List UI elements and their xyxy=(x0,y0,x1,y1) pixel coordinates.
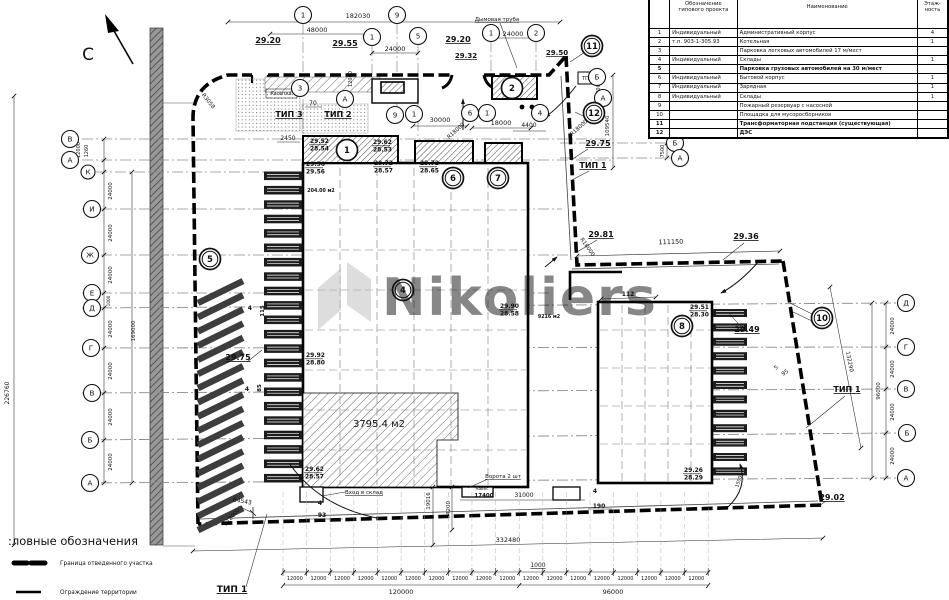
chain-segment-label: 12000 xyxy=(499,576,515,582)
annotation-text: 1260 xyxy=(84,145,90,158)
axis-circle-Г: Г xyxy=(898,339,915,356)
elevation-top: 29.26 xyxy=(684,467,703,474)
axis-circle-label: Б xyxy=(88,436,93,445)
chain-segment-label: 12000 xyxy=(287,576,303,582)
table-cell: 11 xyxy=(650,119,670,128)
annotation-text: 204.00 м2 xyxy=(307,188,334,194)
building-circle-label: 10 xyxy=(816,314,828,324)
annotation-text: 29.50 xyxy=(546,49,568,57)
elevation-top: 29.51 xyxy=(690,304,709,311)
table-cell: 1 xyxy=(917,92,947,101)
chain-segment-label: 12000 xyxy=(618,576,634,582)
legend-item-boundary: Граница отведенного участка xyxy=(60,561,153,567)
elevation-mark: 29.6228.57 xyxy=(304,466,324,481)
table-cell xyxy=(670,129,737,138)
building-circle-label: 12 xyxy=(588,109,600,119)
axis-circle-label: 6 xyxy=(468,109,473,118)
annotation-text: 226760 xyxy=(4,381,11,404)
parking-stripe xyxy=(264,402,302,411)
stripe-body xyxy=(264,330,302,339)
table-cell: Индивидуальный xyxy=(670,92,737,101)
table-cell: Склады xyxy=(737,92,917,101)
stripe-body xyxy=(264,186,302,195)
axis-circle-А: А xyxy=(337,91,354,108)
elevation-bottom: 28.29 xyxy=(684,475,703,482)
table-cell: Парковка легковых автомобилей 17 м/мест xyxy=(737,47,917,56)
table-header-name: Наименование xyxy=(737,0,917,29)
table-header-designation: Обозначение типового проекта xyxy=(670,0,737,29)
parking-stripe xyxy=(264,460,302,469)
table-row: 11Трансформаторная подстанция (существую… xyxy=(650,119,948,128)
annotation-text: 29.55 xyxy=(332,39,358,48)
table-cell xyxy=(670,110,737,119)
annotation-text: ТИП 1 xyxy=(217,585,248,595)
stripe-body xyxy=(264,172,302,181)
axis-circle-label: А xyxy=(88,479,93,488)
axis-circle-label: В xyxy=(904,385,909,394)
annotation-text: 24000 xyxy=(108,362,114,380)
chain-segment-label: 12000 xyxy=(665,576,681,582)
annotation-text: ТИП 3 xyxy=(275,110,302,119)
annotation-text: 29.36 xyxy=(733,232,759,241)
chain-segment-label: 12000 xyxy=(429,576,445,582)
stripe-body xyxy=(713,381,747,389)
table-cell: 7 xyxy=(650,83,670,92)
annotation-text: 24000 xyxy=(890,403,896,421)
elevation-bottom: 28.57 xyxy=(374,168,393,175)
table-cell: Парковка грузовых автомобилей на 30 м/ме… xyxy=(737,65,917,74)
table-cell: 8 xyxy=(650,92,670,101)
axis-circle-А: А xyxy=(62,152,79,169)
table-cell xyxy=(917,110,947,119)
axis-circle-label: 9 xyxy=(395,11,400,20)
axis-circle-1: 1 xyxy=(479,105,496,122)
elevation-top: 29.52 xyxy=(310,138,329,145)
elevation-mark: 29.5228.54 xyxy=(309,138,329,153)
annotation-text: 19016 xyxy=(426,492,432,510)
annotation-text: 96000 xyxy=(603,588,624,596)
table-cell: Индивидуальный xyxy=(670,83,737,92)
annotation-text: 29.20 xyxy=(445,35,471,44)
annotation-text: 115 xyxy=(260,305,266,317)
axis-circle-5: 5 xyxy=(410,28,427,45)
legend-item-fence: Ограждение территории xyxy=(60,590,137,596)
parking-stripe xyxy=(264,229,302,238)
axis-circle-label: 9 xyxy=(393,111,398,120)
annotation-text: 24000 xyxy=(108,266,114,284)
elevation-top: 29.92 xyxy=(306,352,325,359)
table-cell: Индивидуальный xyxy=(670,29,737,38)
annotation-text: 3795.4 м2 xyxy=(353,419,405,430)
annotation-text: Калитка xyxy=(270,91,291,97)
chain-segment-label: 12000 xyxy=(594,576,610,582)
legend-title: :ловные обозначения xyxy=(8,534,138,548)
axis-circle-label: 2 xyxy=(534,29,539,38)
stripe-body xyxy=(264,359,302,368)
annotation-text: 1000 xyxy=(106,295,111,306)
chain-segment-label: 12000 xyxy=(476,576,492,582)
annotation-text: 1000 xyxy=(530,562,545,569)
annotation-text: 4 xyxy=(318,500,322,507)
annotation-text: 24000 xyxy=(385,45,406,53)
axis-circle-Б: Б xyxy=(589,69,606,86)
table-cell: Административный корпус xyxy=(737,29,917,38)
axis-circle-3: 3 xyxy=(292,80,309,97)
table-cell: Котельная xyxy=(737,38,917,47)
stripe-body xyxy=(264,200,302,209)
table-row: 9Пожарный резервуар с насосной xyxy=(650,101,948,110)
table-cell xyxy=(670,47,737,56)
stripe-body xyxy=(713,352,747,360)
annotation-text: 18000 xyxy=(491,119,512,127)
table-cell: 1 xyxy=(917,56,947,65)
building-label-1: 1 xyxy=(337,140,358,161)
annotation-text: 182030 xyxy=(346,12,371,20)
axis-circle-1: 1 xyxy=(295,7,312,24)
stripe-body xyxy=(713,410,747,418)
chain-segment-label: 12000 xyxy=(688,576,704,582)
axis-circle-label: Г xyxy=(89,344,93,353)
axis-circle-1: 1 xyxy=(483,25,500,42)
axis-circle-label: 3 xyxy=(298,84,303,93)
table-cell: 3 xyxy=(650,47,670,56)
annotation-text: 4400 xyxy=(521,122,536,129)
axis-circle-label: Б xyxy=(595,73,600,82)
axis-circle-label: 1 xyxy=(301,11,306,20)
annotation-text: 24000 xyxy=(890,360,896,378)
axis-circle-label: 5 xyxy=(416,32,421,41)
axis-circle-label: В xyxy=(68,135,73,144)
table-row: 4ИндивидуальныйСклады1 xyxy=(650,56,948,65)
stripe-body xyxy=(264,373,302,382)
annotation-text: ТП xyxy=(581,76,589,82)
table-cell xyxy=(917,65,947,74)
parking-stripe xyxy=(264,316,302,325)
parking-stripe xyxy=(264,445,302,454)
elevation-mark: 29.7228.57 xyxy=(373,160,393,175)
table-cell xyxy=(917,119,947,128)
stripe-body xyxy=(264,388,302,397)
elevation-top: 29.72 xyxy=(374,160,393,167)
building-7-charging xyxy=(485,143,522,163)
table-cell: Пожарный резервуар с насосной xyxy=(737,101,917,110)
parking-stripe xyxy=(713,424,747,432)
stripe-body xyxy=(713,338,747,346)
elevation-top: 29.62 xyxy=(373,139,392,146)
table-cell xyxy=(670,101,737,110)
chain-segment-label: 12000 xyxy=(310,576,326,582)
axis-circle-А: А xyxy=(672,150,689,167)
annotation-text: 30000 xyxy=(430,116,451,124)
axis-circle-Д: Д xyxy=(84,300,101,317)
annotation-text: 4 xyxy=(245,386,249,393)
stripe-body xyxy=(264,460,302,469)
parking-stripe xyxy=(264,215,302,224)
boiler-tank xyxy=(520,105,525,110)
parking-stripe xyxy=(264,258,302,267)
table-header-floors: Этаж- ность xyxy=(917,0,947,29)
stripe-body xyxy=(713,439,747,447)
stripe-body xyxy=(264,445,302,454)
table-row: 1ИндивидуальныйАдминистративный корпус4 xyxy=(650,29,948,38)
table-cell xyxy=(917,129,947,138)
table-cell: 4 xyxy=(917,29,947,38)
parking-stripe xyxy=(713,338,747,346)
elevation-mark: 29.9228.80 xyxy=(305,352,325,367)
north-label: С xyxy=(82,45,94,65)
parking-stripe xyxy=(713,367,747,375)
axis-circle-label: 1 xyxy=(370,33,375,42)
chain-segment-label: 12000 xyxy=(381,576,397,582)
elevation-bottom: 28.65 xyxy=(420,168,439,175)
annotation-text: 24000 xyxy=(890,317,896,335)
parking-stripe xyxy=(264,373,302,382)
axis-circle-Д: Д xyxy=(898,295,915,312)
building-circle-label: 1 xyxy=(344,146,350,156)
stripe-body xyxy=(264,431,302,440)
axis-circle-Ж: Ж xyxy=(82,247,99,264)
axis-circle-label: Д xyxy=(89,304,95,313)
axis-circle-6: 6 xyxy=(462,105,479,122)
stripe-body xyxy=(264,402,302,411)
chain-segment-label: 12000 xyxy=(547,576,563,582)
parking-stripe xyxy=(264,244,302,253)
annotation-text: 4200 xyxy=(446,501,452,515)
annotation-text: Ворота 2 шт xyxy=(485,474,522,480)
axis-circle-label: 4 xyxy=(538,109,543,118)
parking-stripe xyxy=(264,186,302,195)
annotation-text: 29.75 xyxy=(585,139,611,148)
site-plan-page: С :ловные обозначения Граница отведенног… xyxy=(0,0,949,600)
parking-stripe xyxy=(713,309,747,317)
table-cell: 2 xyxy=(650,38,670,47)
elevation-mark: 29.6228.53 xyxy=(372,139,392,154)
table-cell: Площадка для мусоросборников xyxy=(737,110,917,119)
annotation-text: 29.81 xyxy=(588,230,614,239)
watermark-text: Nikoliers xyxy=(382,268,658,328)
axis-circle-И: И xyxy=(84,201,101,218)
axis-circle-В: В xyxy=(898,381,915,398)
axis-circle-label: И xyxy=(89,205,94,214)
annotation-text: 29.75 xyxy=(225,353,251,362)
table-row: 12ДЭС xyxy=(650,129,948,138)
axis-circle-label: А xyxy=(904,474,909,483)
chain-segment-label: 12000 xyxy=(334,576,350,582)
table-cell xyxy=(670,119,737,128)
axis-circle-label: А xyxy=(678,154,683,163)
elevation-top: 29.56 xyxy=(306,161,325,168)
annotation-text: 17400 xyxy=(474,493,493,499)
axis-circle-2: 2 xyxy=(528,25,545,42)
parking-stripe xyxy=(713,410,747,418)
axis-circle-label: 1 xyxy=(489,29,494,38)
stripe-body xyxy=(264,474,302,483)
annotation-text: 24000 xyxy=(108,224,114,242)
stripe-body xyxy=(264,416,302,425)
axis-circle-label: Е xyxy=(90,289,95,298)
axis-circle-К: К xyxy=(81,165,95,179)
annotation-text: 29.20 xyxy=(255,36,281,45)
elevation-bottom: 28.53 xyxy=(373,147,392,154)
table-cell: 12 xyxy=(650,129,670,138)
annotation-text: 96000 xyxy=(876,382,882,400)
table-row: 8ИндивидуальныйСклады1 xyxy=(650,92,948,101)
annotation-text: ТИП 1 xyxy=(833,385,861,394)
axis-circle-label: Б xyxy=(905,429,910,438)
stripe-body xyxy=(713,424,747,432)
elevation-mark: 29.5128.30 xyxy=(689,304,709,319)
annotation-text: 24000 xyxy=(503,30,524,38)
building-label-2: 2 xyxy=(502,78,523,99)
annotation-text: 24000 xyxy=(108,320,114,338)
building-label-11: 11 xyxy=(582,36,603,57)
stripe-body xyxy=(264,287,302,296)
table-cell: 10 xyxy=(650,110,670,119)
annotation-text: ТИП 1 xyxy=(579,161,607,170)
axis-circle-label: А xyxy=(68,156,73,165)
elevation-bottom: 29.56 xyxy=(306,169,325,176)
table-cell: Трансформаторная подстанция (существующа… xyxy=(737,119,917,128)
table-cell: 1 xyxy=(917,74,947,83)
table-cell: Бытовой корпус xyxy=(737,74,917,83)
chain-segment-label: 12000 xyxy=(358,576,374,582)
building-circle-label: 11 xyxy=(586,42,598,52)
annotation-text: 4 xyxy=(248,305,252,312)
annotation-text: 111150 xyxy=(658,238,683,247)
elevation-mark: 29.2628.29 xyxy=(683,467,703,482)
parking-stripe xyxy=(264,200,302,209)
parking-stripe xyxy=(264,172,302,181)
table-cell: 1 xyxy=(917,83,947,92)
axis-circle-label: Б xyxy=(673,139,678,148)
axis-circle-1: 1 xyxy=(364,29,381,46)
table-cell: 5 xyxy=(650,65,670,74)
parking-stripe xyxy=(713,381,747,389)
table-header-num xyxy=(650,0,670,29)
annotation-text: 24000 xyxy=(108,408,114,426)
axis-circle-4: 4 xyxy=(532,105,549,122)
annotation-text: 2450 xyxy=(280,135,295,142)
axis-circle-label: 1 xyxy=(412,110,417,119)
table-cell: Склады xyxy=(737,56,917,65)
table-row: 2т.п. 903-1-305.93Котельная1 xyxy=(650,38,948,47)
elevation-top: 29.62 xyxy=(305,466,324,473)
parking-stripe xyxy=(264,359,302,368)
annotation-text: 7500 xyxy=(660,145,666,158)
annotation-text: 29.02 xyxy=(819,493,844,502)
stripe-body xyxy=(264,244,302,253)
elevation-mark: 29.7228.65 xyxy=(419,160,439,175)
table-row: 10Площадка для мусоросборников xyxy=(650,110,948,119)
annotation-text: 24000 xyxy=(108,453,114,471)
parking-stripe xyxy=(713,395,747,403)
table-row: 7ИндивидуальныйЗарядная1 xyxy=(650,83,948,92)
table-cell: т.п. 903-1-305.93 xyxy=(670,38,737,47)
axis-circle-Г: Г xyxy=(83,340,100,357)
axis-circle-Б: Б xyxy=(899,425,916,442)
parking-stripe xyxy=(264,287,302,296)
axis-circle-В: В xyxy=(84,385,101,402)
building-circle-label: 7 xyxy=(495,174,501,184)
chain-segment-label: 12000 xyxy=(523,576,539,582)
annotation-text: 4 xyxy=(593,488,597,495)
stripe-body xyxy=(264,301,302,310)
table-row: 5Парковка грузовых автомобилей на 30 м/м… xyxy=(650,65,948,74)
table-cell: 1 xyxy=(650,29,670,38)
stripe-body xyxy=(264,258,302,267)
parking-stripe xyxy=(264,301,302,310)
stripe-body xyxy=(264,344,302,353)
building-label-12: 12 xyxy=(584,103,605,124)
elevation-bottom: 28.54 xyxy=(310,146,329,153)
parking-stripe xyxy=(264,344,302,353)
stripe-body xyxy=(713,395,747,403)
chain-segment-label: 12000 xyxy=(452,576,468,582)
annotation-text: 31000 xyxy=(514,492,533,499)
stripe-body xyxy=(264,316,302,325)
annotation-text: Дымовая труба xyxy=(475,17,520,23)
axis-circle-label: Г xyxy=(904,343,908,352)
annotation-text: 332480 xyxy=(496,536,521,544)
parking-stripe xyxy=(264,388,302,397)
annotation-text: 12000 xyxy=(348,71,354,87)
axis-circle-9: 9 xyxy=(387,107,404,124)
stripe-body xyxy=(264,272,302,281)
table-row: 3Парковка легковых автомобилей 17 м/мест xyxy=(650,47,948,56)
axis-circle-А: А xyxy=(82,475,99,492)
parking-stripe xyxy=(264,330,302,339)
elevation-bottom: 28.57 xyxy=(305,474,324,481)
building-9-inner xyxy=(381,82,404,93)
building-circle-label: 2 xyxy=(509,84,515,94)
stripe-body xyxy=(264,215,302,224)
axis-circle-label: А xyxy=(601,94,606,103)
building-label-7: 7 xyxy=(488,168,509,189)
annotation-text: 109540 xyxy=(605,115,611,136)
stripe-body xyxy=(264,229,302,238)
annotation-text: 24000 xyxy=(108,182,114,200)
parking-stripe xyxy=(713,439,747,447)
axis-circle-label: В xyxy=(90,389,95,398)
axis-circle-label: Д xyxy=(903,299,909,308)
annotation-text: 169000 xyxy=(131,320,137,341)
annotation-text: 120000 xyxy=(389,588,414,596)
axis-circle-label: Ж xyxy=(86,251,94,260)
table-cell xyxy=(917,47,947,56)
elevation-bottom: 28.30 xyxy=(690,312,709,319)
axis-circle-label: К xyxy=(85,168,90,177)
building-label-5: 5 xyxy=(200,249,221,270)
annotation-text: 29.49 xyxy=(734,325,760,334)
table-cell: Индивидуальный xyxy=(670,74,737,83)
table-cell: ДЭС xyxy=(737,129,917,138)
building-8-warehouse xyxy=(598,302,712,483)
parking-stripe xyxy=(264,474,302,483)
annotation-text: 70 xyxy=(309,100,317,107)
stripe-body xyxy=(713,453,747,461)
parking-stripe xyxy=(713,352,747,360)
stripe-body xyxy=(713,367,747,375)
parking-stripe xyxy=(264,272,302,281)
building-circle-label: 6 xyxy=(450,174,456,184)
elevation-bottom: 28.80 xyxy=(306,360,325,367)
parking-stripe xyxy=(264,416,302,425)
axis-circle-Б: Б xyxy=(82,432,99,449)
table-cell: 9 xyxy=(650,101,670,110)
annotation-text: 48000 xyxy=(307,26,328,34)
axis-circle-label: А xyxy=(343,95,348,104)
table-row: 6ИндивидуальныйБытовой корпус1 xyxy=(650,74,948,83)
